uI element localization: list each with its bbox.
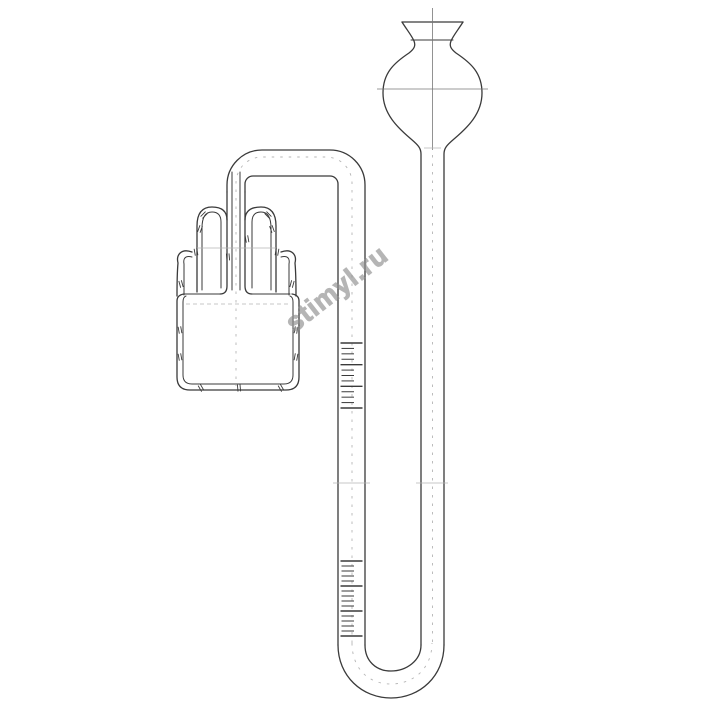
lower-scale xyxy=(341,561,363,636)
right-ear-inner xyxy=(281,256,289,295)
container-outer-wall xyxy=(177,294,299,390)
left-bell-inner xyxy=(202,212,221,290)
wall-hatch-mark xyxy=(179,280,183,287)
bend-inner-wall xyxy=(245,176,338,645)
container-inner-wall xyxy=(183,296,293,384)
left-bell-chamber xyxy=(197,207,227,292)
top-bend-and-left-leg xyxy=(227,150,433,645)
central-tube-outer-right xyxy=(245,192,252,294)
glassware-diagram: stimyl.ru xyxy=(0,0,720,720)
wall-hatch-mark xyxy=(290,280,294,287)
bend-centerline xyxy=(236,157,352,643)
measuring-vessel xyxy=(177,172,299,390)
wall-hatch-mark xyxy=(194,248,198,255)
wall-hatch-mark xyxy=(178,326,182,333)
upper-scale xyxy=(341,343,363,408)
vessel-container xyxy=(177,294,299,390)
wall-hatch-mark xyxy=(294,326,298,333)
u-bend-inner xyxy=(365,645,421,671)
u-bend-centerline xyxy=(352,643,432,684)
right-ear xyxy=(281,251,296,296)
hatch-marks xyxy=(178,212,298,392)
funnel-right-profile xyxy=(444,22,482,645)
left-ear xyxy=(177,251,192,296)
wall-hatch-mark xyxy=(294,353,298,360)
right-bell-inner xyxy=(252,212,271,290)
wall-hatch-mark xyxy=(275,248,279,255)
wall-hatch-mark xyxy=(178,353,182,360)
wall-hatch-mark xyxy=(226,253,229,260)
glassware-line-drawing xyxy=(0,0,720,720)
wall-hatch-mark xyxy=(201,212,208,219)
left-ear-inner xyxy=(184,256,192,295)
right-bell-chamber xyxy=(245,207,276,292)
funnel-left-profile xyxy=(383,22,421,645)
wall-hatch-mark xyxy=(270,225,275,232)
wall-hatch-mark xyxy=(245,235,249,242)
u-bend xyxy=(338,643,444,698)
